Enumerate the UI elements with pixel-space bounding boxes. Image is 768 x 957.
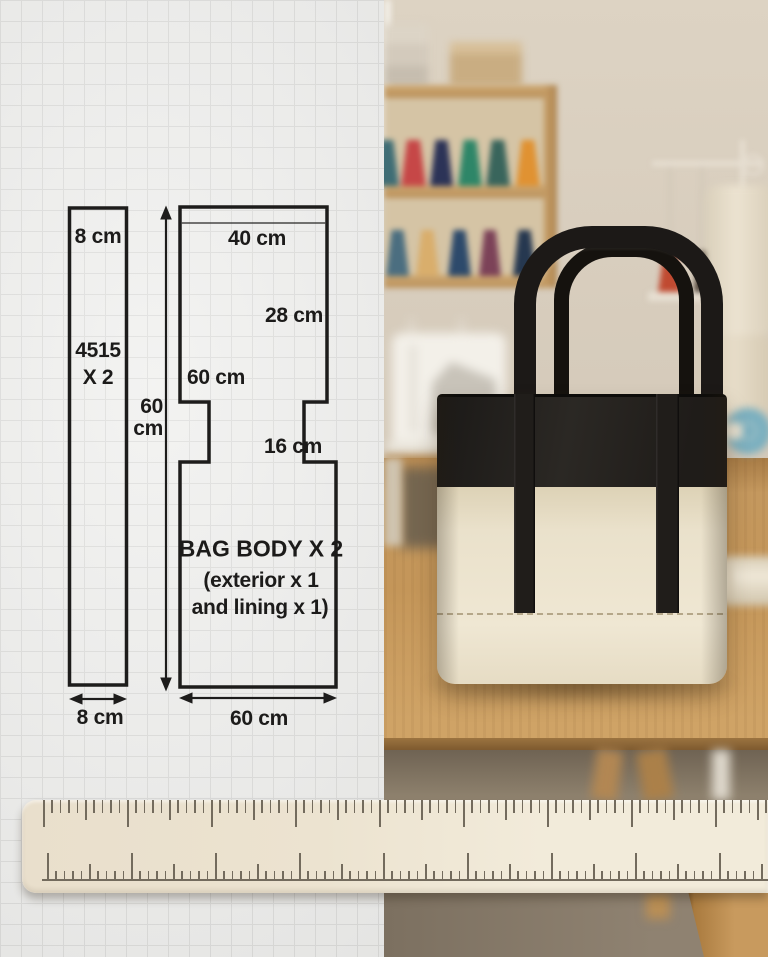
floor-below-ruler bbox=[384, 891, 768, 957]
ruler-tick-bottom bbox=[559, 871, 561, 879]
ruler-tick-top bbox=[194, 800, 196, 813]
ruler-tick-top bbox=[60, 800, 62, 813]
ruler-tick-top bbox=[480, 800, 482, 813]
ruler-tick-bottom bbox=[677, 864, 679, 879]
ruler-tick-top bbox=[723, 800, 725, 813]
ruler-tick-top bbox=[715, 800, 717, 827]
ruler-tick-top bbox=[446, 800, 448, 813]
ruler-tick-bottom bbox=[711, 871, 713, 879]
ruler-tick-bottom bbox=[307, 871, 309, 879]
ruler-tick-top bbox=[421, 800, 423, 820]
ruler-tick-bottom bbox=[148, 871, 150, 879]
height-arrow-unit: cm bbox=[133, 418, 163, 440]
ruler-tick-bottom bbox=[425, 864, 427, 879]
ruler-tick-bottom bbox=[526, 871, 528, 879]
thread-cone bbox=[416, 230, 439, 276]
stool-leg-1 bbox=[591, 748, 624, 801]
thread-cone bbox=[479, 230, 501, 276]
ruler-tick-bottom bbox=[660, 871, 662, 879]
ruler-tick-top bbox=[522, 800, 524, 813]
ruler-tick-top bbox=[572, 800, 574, 813]
ruler-tick-top bbox=[732, 800, 734, 813]
tote-bag-body bbox=[437, 394, 727, 684]
ruler-tick-bottom bbox=[106, 871, 108, 879]
ruler-tick-bottom bbox=[123, 871, 125, 879]
ruler-tick-top bbox=[110, 800, 112, 813]
ruler-tick-top bbox=[119, 800, 121, 813]
ruler-tick-bottom bbox=[408, 871, 410, 879]
ruler-tick-bottom bbox=[232, 871, 234, 879]
ruler-tick-top bbox=[488, 800, 490, 813]
ruler-tick-top bbox=[547, 800, 549, 827]
thread-cone bbox=[448, 230, 471, 276]
ruler-tick-bottom bbox=[223, 871, 225, 879]
ruler-tick-bottom bbox=[492, 871, 494, 879]
ruler-tick-top bbox=[404, 800, 406, 813]
ruler-tick-top bbox=[93, 800, 95, 813]
ruler-tick-bottom bbox=[240, 871, 242, 879]
ruler-tick-bottom bbox=[131, 853, 133, 879]
ruler-tick-bottom bbox=[761, 864, 763, 879]
table-front-edge bbox=[384, 738, 768, 750]
ruler-tick-top bbox=[228, 800, 230, 813]
ruler-tick-bottom bbox=[64, 871, 66, 879]
ruler-tick-top bbox=[161, 800, 163, 813]
ruler-tick-bottom bbox=[685, 871, 687, 879]
ruler-tick-top bbox=[51, 800, 53, 813]
ruler-tick-top bbox=[303, 800, 305, 813]
ruler-tick-top bbox=[329, 800, 331, 813]
height-arrow-label: 60 cm bbox=[133, 396, 163, 440]
ruler-baseline bbox=[42, 879, 768, 881]
ruler-tick-top bbox=[177, 800, 179, 813]
ruler-tick-top bbox=[597, 800, 599, 813]
ruler-tick-top bbox=[513, 800, 515, 813]
ruler-tick-top bbox=[665, 800, 667, 813]
ruler-tick-bottom bbox=[181, 871, 183, 879]
ruler-tick-top bbox=[127, 800, 129, 827]
ruler-tick-top bbox=[505, 800, 507, 820]
ruler-tick-bottom bbox=[358, 871, 360, 879]
ruler-tick-bottom bbox=[627, 871, 629, 879]
body-piece-subtitle2: and lining x 1) bbox=[192, 596, 329, 620]
ruler-tick-bottom bbox=[475, 871, 477, 879]
ruler-tick-bottom bbox=[694, 871, 696, 879]
ruler-tick-top bbox=[270, 800, 272, 813]
ruler-tick-bottom bbox=[333, 871, 335, 879]
ruler-tick-bottom bbox=[610, 871, 612, 879]
ruler-tick-top bbox=[68, 800, 70, 813]
ruler-tick-bottom bbox=[366, 871, 368, 879]
ruler-tick-bottom bbox=[509, 864, 511, 879]
ruler-tick-top bbox=[413, 800, 415, 813]
stool-leg-2 bbox=[636, 748, 674, 802]
ruler-tick-top bbox=[295, 800, 297, 827]
ruler-tick-bottom bbox=[198, 871, 200, 879]
ruler-tick-top bbox=[463, 800, 465, 827]
ruler-tick-bottom bbox=[433, 871, 435, 879]
ruler bbox=[22, 800, 768, 893]
ruler-tick-bottom bbox=[207, 871, 209, 879]
blue-tape-core bbox=[725, 422, 743, 440]
body-left-side-label: 60 cm bbox=[187, 366, 245, 390]
ruler-tick-top bbox=[236, 800, 238, 813]
ruler-tick-top bbox=[530, 800, 532, 813]
ruler-tick-bottom bbox=[467, 853, 469, 879]
ruler-tick-top bbox=[245, 800, 247, 813]
ruler-tick-top bbox=[152, 800, 154, 813]
ruler-tick-bottom bbox=[585, 871, 587, 879]
ruler-tick-bottom bbox=[173, 864, 175, 879]
height-dimension-arrow bbox=[160, 206, 172, 692]
ruler-tick-top bbox=[623, 800, 625, 813]
ruler-tick-top bbox=[648, 800, 650, 813]
ruler-tick-bottom bbox=[459, 871, 461, 879]
bag-black-section bbox=[437, 394, 727, 490]
ruler-tick-bottom bbox=[736, 871, 738, 879]
ruler-tick-bottom bbox=[400, 871, 402, 879]
ruler-tick-bottom bbox=[601, 871, 603, 879]
ruler-tick-top bbox=[337, 800, 339, 820]
under-table-area bbox=[384, 750, 768, 800]
bag-front-handle bbox=[514, 226, 723, 420]
body-piece-subtitle1: (exterior x 1 bbox=[203, 569, 318, 593]
ruler-tick-bottom bbox=[139, 871, 141, 879]
stool-leg-bottom bbox=[646, 893, 670, 919]
ruler-tick-bottom bbox=[257, 864, 259, 879]
bag-front-strap-left bbox=[514, 394, 535, 613]
ruler-tick-bottom bbox=[719, 853, 721, 879]
bag-cream-section bbox=[437, 487, 727, 684]
ruler-tick-top bbox=[345, 800, 347, 813]
ruler-tick-top bbox=[169, 800, 171, 820]
thread-cone bbox=[386, 230, 409, 276]
white-table-leg bbox=[712, 750, 730, 800]
ruler-tick-top bbox=[606, 800, 608, 813]
ruler-tick-bottom bbox=[249, 871, 251, 879]
ruler-tick-bottom bbox=[744, 871, 746, 879]
ruler-tick-top bbox=[43, 800, 45, 827]
ruler-tick-top bbox=[102, 800, 104, 813]
ruler-tick-top bbox=[698, 800, 700, 813]
ruler-tick-top bbox=[186, 800, 188, 813]
ruler-tick-bottom bbox=[753, 871, 755, 879]
height-arrow-value: 60 bbox=[133, 396, 163, 418]
ruler-tick-bottom bbox=[274, 871, 276, 879]
ruler-tick-bottom bbox=[72, 871, 74, 879]
ruler-tick-bottom bbox=[81, 871, 83, 879]
ruler-tick-top bbox=[203, 800, 205, 813]
ruler-tick-top bbox=[362, 800, 364, 813]
ruler-tick-bottom bbox=[156, 871, 158, 879]
ruler-tick-top bbox=[253, 800, 255, 820]
ruler-tick-bottom bbox=[593, 864, 595, 879]
ruler-tick-bottom bbox=[97, 871, 99, 879]
strap-width-arrow bbox=[69, 693, 127, 704]
ruler-tick-bottom bbox=[265, 871, 267, 879]
ruler-tick-bottom bbox=[643, 871, 645, 879]
ruler-tick-bottom bbox=[55, 871, 57, 879]
ruler-tick-top bbox=[371, 800, 373, 813]
ruler-tick-top bbox=[144, 800, 146, 813]
ruler-tick-top bbox=[135, 800, 137, 813]
strap-piece-label-line1: 4515 bbox=[75, 339, 121, 363]
ruler-tick-bottom bbox=[114, 871, 116, 879]
body-notch-label: 16 cm bbox=[264, 435, 322, 459]
bag-bottom-seam bbox=[437, 613, 727, 615]
ruler-tick-bottom bbox=[669, 871, 671, 879]
ruler-tick-bottom bbox=[190, 871, 192, 879]
bag-left-shading bbox=[437, 394, 459, 684]
ruler-tick-top bbox=[690, 800, 692, 813]
ruler-tick-top bbox=[631, 800, 633, 827]
ruler-tick-top bbox=[581, 800, 583, 813]
ruler-tick-bottom bbox=[534, 871, 536, 879]
ruler-tick-bottom bbox=[635, 853, 637, 879]
ruler-tick-top bbox=[656, 800, 658, 813]
ruler-tick-top bbox=[740, 800, 742, 813]
body-width-arrow bbox=[179, 692, 337, 703]
body-piece-title: BAG BODY X 2 bbox=[179, 536, 343, 563]
ruler-tick-top bbox=[749, 800, 751, 813]
ruler-tick-top bbox=[85, 800, 87, 820]
ruler-tick-bottom bbox=[517, 871, 519, 879]
ruler-tick-top bbox=[681, 800, 683, 813]
strap-piece-label-line2: X 2 bbox=[83, 366, 114, 390]
machine-needle-bar bbox=[411, 345, 415, 433]
ruler-tick-bottom bbox=[568, 871, 570, 879]
ruler-tick-bottom bbox=[484, 871, 486, 879]
thread-cones-bottom-row bbox=[384, 0, 564, 280]
ruler-tick-bottom bbox=[215, 853, 217, 879]
ruler-tick-bottom bbox=[543, 871, 545, 879]
ruler-tick-bottom bbox=[702, 871, 704, 879]
screenshot-root: 8 cm 4515 X 2 8 cm 60 cm 40 cm 28 cm 60 … bbox=[0, 0, 768, 957]
ruler-tick-bottom bbox=[450, 871, 452, 879]
ruler-tick-bottom bbox=[727, 871, 729, 879]
ruler-tick-top bbox=[589, 800, 591, 820]
body-bottom-width-label: 60 cm bbox=[230, 707, 288, 731]
ruler-tick-top bbox=[354, 800, 356, 813]
ruler-tick-top bbox=[312, 800, 314, 813]
ruler-tick-top bbox=[539, 800, 541, 813]
ruler-tick-top bbox=[564, 800, 566, 813]
ruler-tick-top bbox=[614, 800, 616, 813]
ruler-tick-top bbox=[287, 800, 289, 813]
ruler-tick-top bbox=[211, 800, 213, 827]
ruler-tick-top bbox=[219, 800, 221, 813]
ruler-tick-top bbox=[639, 800, 641, 813]
ruler-tick-bottom bbox=[417, 871, 419, 879]
ruler-tick-bottom bbox=[501, 871, 503, 879]
ruler-tick-top bbox=[765, 800, 767, 813]
ruler-tick-top bbox=[320, 800, 322, 813]
ruler-tick-bottom bbox=[291, 871, 293, 879]
ruler-tick-bottom bbox=[442, 871, 444, 879]
ruler-tick-top bbox=[707, 800, 709, 813]
ruler-tick-top bbox=[429, 800, 431, 813]
ruler-tick-top bbox=[673, 800, 675, 820]
ruler-tick-bottom bbox=[165, 871, 167, 879]
ruler-tick-bottom bbox=[551, 853, 553, 879]
ruler-tick-top bbox=[497, 800, 499, 813]
ruler-tick-top bbox=[379, 800, 381, 827]
ruler-tick-bottom bbox=[282, 871, 284, 879]
ruler-tick-bottom bbox=[89, 864, 91, 879]
ruler-tick-top bbox=[387, 800, 389, 813]
ruler-tick-bottom bbox=[47, 853, 49, 879]
ruler-tick-bottom bbox=[349, 871, 351, 879]
ruler-tick-bottom bbox=[316, 871, 318, 879]
strap-piece-outline bbox=[70, 208, 127, 685]
strap-bottom-width-label: 8 cm bbox=[77, 706, 124, 730]
ruler-tick-top bbox=[757, 800, 759, 820]
ruler-tick-top bbox=[555, 800, 557, 813]
ruler-tick-bottom bbox=[383, 853, 385, 879]
ruler-tick-bottom bbox=[576, 871, 578, 879]
ruler-tick-top bbox=[278, 800, 280, 813]
ruler-tick-top bbox=[261, 800, 263, 813]
bag-right-shading bbox=[701, 394, 727, 684]
ruler-tick-top bbox=[77, 800, 79, 813]
strap-top-width-label: 8 cm bbox=[75, 225, 122, 249]
bag-front-strap-right bbox=[656, 394, 679, 613]
ruler-tick-top bbox=[455, 800, 457, 813]
ruler-tick-top bbox=[396, 800, 398, 813]
ruler-tick-bottom bbox=[375, 871, 377, 879]
wood-bench-corner bbox=[684, 891, 768, 957]
ruler-tick-bottom bbox=[299, 853, 301, 879]
ruler-tick-bottom bbox=[341, 864, 343, 879]
body-upper-right-label: 28 cm bbox=[265, 304, 323, 328]
ruler-tick-top bbox=[438, 800, 440, 813]
ruler-tick-bottom bbox=[391, 871, 393, 879]
background-furniture-sliver bbox=[384, 458, 402, 546]
body-top-width-label: 40 cm bbox=[228, 227, 286, 251]
ruler-tick-top bbox=[471, 800, 473, 813]
ruler-tick-bottom bbox=[324, 871, 326, 879]
ruler-tick-bottom bbox=[618, 871, 620, 879]
ruler-tick-bottom bbox=[652, 871, 654, 879]
